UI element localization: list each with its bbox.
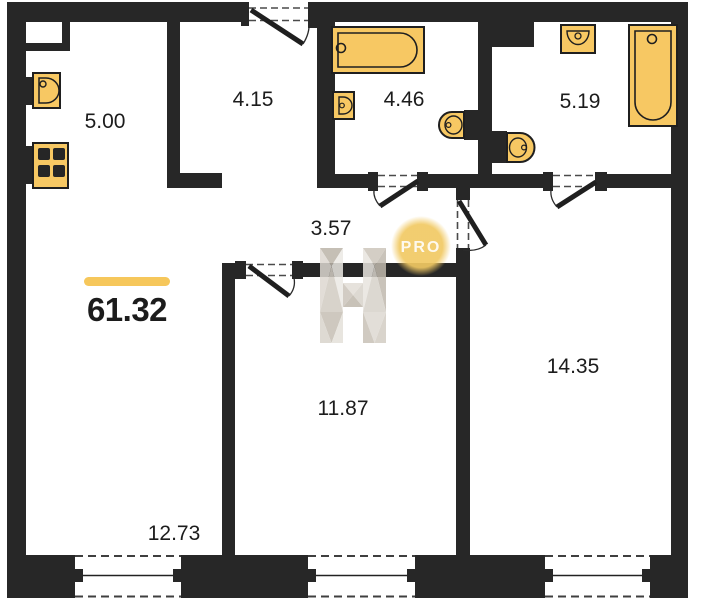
toilet-icon [507,133,535,162]
wall-segment [478,22,492,174]
wall-segment [7,555,75,598]
wall-segment [317,2,671,22]
washbasin-icon [333,92,354,119]
room-area-label-bathroom-1: 4.46 [384,88,425,111]
door-leaf [249,266,289,296]
wall-stub [26,77,33,105]
wall-segment [167,173,222,188]
room-area-label-kitchen: 5.00 [85,110,126,133]
floor-plan: PRO 5.00 4.15 4.46 5.19 3.57 11.87 14.35… [0,0,701,600]
room-area-label-hallway: 4.15 [233,88,274,111]
wall-segment [415,555,545,598]
door-jamb [368,172,378,191]
pro-badge: PRO [391,216,451,276]
wall-segment [650,555,688,598]
window-cap [642,569,650,582]
window-cap [308,569,316,582]
door-jamb [417,172,428,191]
door-jamb [292,261,303,279]
toilet-tank [492,131,507,163]
room-area-label-room-right: 14.35 [547,355,600,378]
washbasin-icon [561,25,595,53]
wall-segment [26,43,70,51]
wall-segment [7,2,26,598]
door-jamb [235,261,246,279]
door-jamb [241,2,249,26]
bathtub-icon [332,27,424,73]
pro-badge-label: PRO [401,239,442,256]
wall-segment [222,263,235,555]
window-cap [545,569,553,582]
door-swing-icon [374,190,380,206]
room-area-label-bathroom-2: 5.19 [560,90,601,113]
door-jamb [595,172,607,191]
door-swing-icon [551,190,557,207]
door-swing-icon [289,278,294,296]
kitchen-sink-icon [33,73,60,108]
door-leaf [380,181,418,206]
wall-segment [181,555,308,598]
wall-stub [26,146,33,184]
total-area-label: 61.32 [87,291,167,328]
wall-segment [607,174,671,188]
wall-segment [456,248,470,555]
floor-plan-page: PRO 5.00 4.15 4.46 5.19 3.57 11.87 14.35… [0,0,701,600]
wall-segment [62,22,70,43]
total-area-accent-bar [84,277,170,286]
h-logo-watermark-icon [320,248,386,343]
window-cap [173,569,181,582]
toilet-tank [464,110,479,140]
wall-segment [428,174,543,188]
windows [75,556,650,597]
wall-segment [492,22,534,47]
door-leaf [459,201,486,245]
door-leaf [251,10,303,44]
room-area-label-room-middle: 11.87 [318,397,369,420]
stove-icon [33,143,68,188]
window-cap [407,569,415,582]
door-jamb [543,172,553,191]
room-area-label-corridor: 3.57 [311,217,352,240]
bathtub-icon [629,25,677,126]
wall-segment [456,188,470,200]
toilet-icon [439,112,464,138]
wall-segment [167,22,180,173]
room-area-label-living: 12.73 [148,522,201,545]
wall-segment [7,2,241,22]
window-cap [75,569,83,582]
wall-segment [317,174,368,188]
